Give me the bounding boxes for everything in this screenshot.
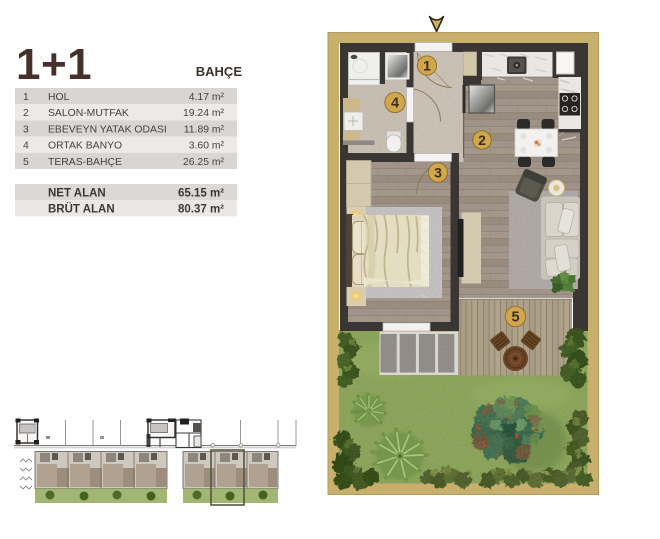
svg-text:1+1: 1+1 (16, 40, 92, 89)
svg-text:2: 2 (478, 132, 486, 148)
svg-text:4: 4 (23, 141, 29, 152)
svg-text:EBEVEYN YATAK ODASI: EBEVEYN YATAK ODASI (48, 124, 167, 135)
svg-text:26.25 m²: 26.25 m² (183, 157, 225, 168)
svg-text:1: 1 (423, 58, 431, 74)
svg-text:SALON-MUTFAK: SALON-MUTFAK (48, 108, 129, 119)
svg-text:19.24 m²: 19.24 m² (183, 108, 225, 119)
svg-text:ORTAK BANYO: ORTAK BANYO (48, 141, 122, 152)
svg-text:3: 3 (434, 165, 442, 181)
svg-text:65.15 m²: 65.15 m² (178, 188, 224, 200)
svg-text:4: 4 (391, 96, 399, 112)
svg-text:NET ALAN: NET ALAN (48, 188, 106, 200)
svg-text:5: 5 (23, 157, 29, 168)
svg-text:HOL: HOL (48, 92, 70, 103)
svg-text:11.89 m²: 11.89 m² (184, 124, 225, 135)
svg-text:1: 1 (23, 92, 29, 103)
svg-text:2: 2 (23, 108, 29, 119)
svg-text:5: 5 (511, 310, 519, 326)
svg-text:80.37 m²: 80.37 m² (178, 204, 224, 216)
svg-text:3.60 m²: 3.60 m² (189, 141, 225, 152)
svg-text:TERAS-BAHÇE: TERAS-BAHÇE (48, 157, 122, 168)
svg-text:BRÜT ALAN: BRÜT ALAN (48, 203, 115, 216)
svg-text:3: 3 (23, 124, 29, 135)
svg-text:4.17 m²: 4.17 m² (189, 92, 225, 103)
svg-text:BAHÇE: BAHÇE (196, 64, 243, 79)
